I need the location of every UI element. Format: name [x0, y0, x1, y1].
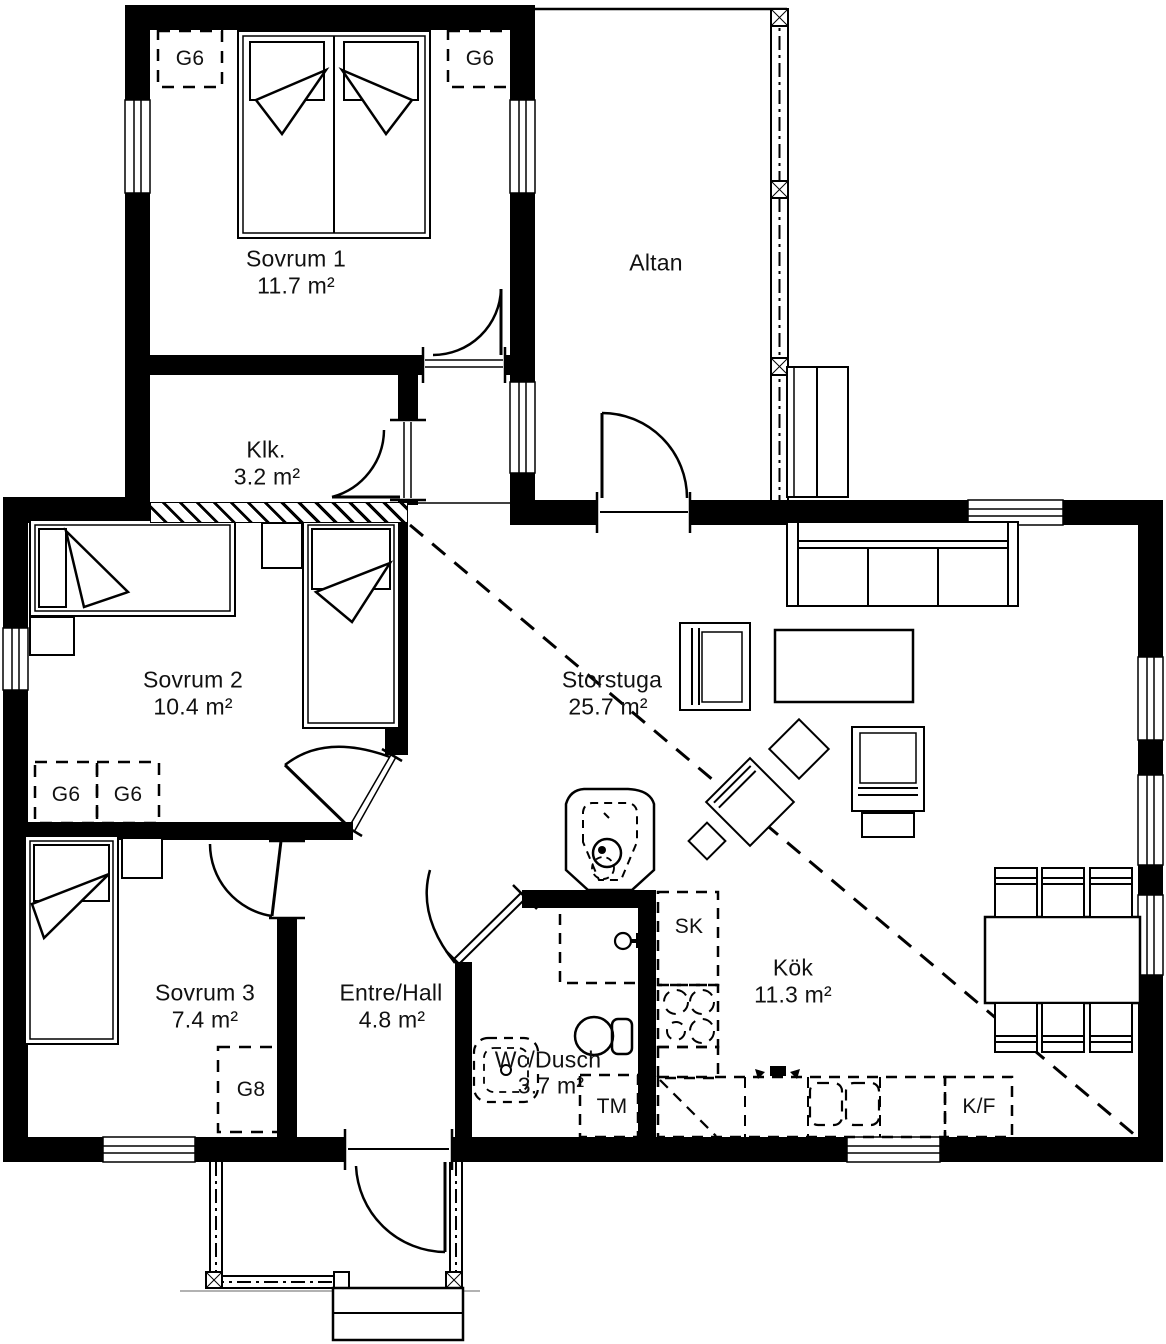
porch-railing-left [210, 1162, 222, 1288]
label-storstuga-name: Storstuga [562, 667, 662, 694]
label-g6-3: G6 [52, 783, 80, 807]
armchair-left [680, 623, 750, 710]
kitchen [658, 892, 1012, 1137]
window-sovrum1-left [125, 100, 150, 193]
porch-railing-right [446, 1162, 462, 1288]
label-g6-1: G6 [176, 47, 204, 71]
label-sovrum2-area: 10.4 m² [153, 694, 232, 721]
label-wc-area: 3.7 m² [518, 1073, 584, 1100]
sovrum2-nightstand-a [30, 617, 74, 655]
label-sovrum1-name: Sovrum 1 [246, 246, 346, 273]
label-g6-4: G6 [114, 783, 142, 807]
altan-storage-box [787, 367, 848, 497]
label-sk: SK [675, 915, 703, 939]
stove-hob [658, 985, 718, 1047]
label-kok-name: Kök [773, 955, 813, 982]
label-altan-name: Altan [629, 250, 682, 277]
footstool-rotated [689, 823, 726, 860]
floor-plan: Sovrum 1 11.7 m² G6 G6 Altan Klk. 3.2 m²… [0, 0, 1166, 1344]
counter-segment [658, 1047, 718, 1078]
sovrum1-bed [238, 31, 430, 238]
door-wc [427, 870, 537, 975]
window-kok-bottom [847, 1137, 940, 1162]
window-sovrum2-left [3, 628, 28, 690]
sink [810, 1083, 879, 1125]
armchair-rotated [706, 758, 794, 846]
label-g8: G8 [237, 1078, 265, 1102]
window-passage-altan [510, 382, 535, 473]
label-tm: TM [597, 1095, 628, 1119]
counter-corner-diagonal [660, 1080, 716, 1136]
label-sovrum3-name: Sovrum 3 [155, 980, 255, 1007]
fireplace-stove [566, 789, 654, 890]
label-sovrum1-area: 11.7 m² [257, 273, 335, 300]
sovrum2-nightstand-b [262, 523, 302, 568]
porch-steps [333, 1288, 463, 1340]
label-klk-name: Klk. [246, 437, 285, 464]
altan-railing [771, 9, 788, 500]
label-entre-area: 4.8 m² [359, 1007, 425, 1034]
counter-run [658, 1077, 945, 1137]
label-kok-area: 11.3 m² [754, 982, 832, 1009]
coffee-table [775, 630, 913, 702]
sovrum3-bed [25, 836, 118, 1044]
dining-table [985, 917, 1140, 1003]
window-right-3 [1138, 895, 1163, 975]
label-sovrum3-area: 7.4 m² [172, 1007, 238, 1034]
label-wc-name: Wc/Dusch [495, 1047, 601, 1074]
label-kf: K/F [962, 1095, 995, 1119]
label-storstuga-area: 25.7 m² [568, 694, 647, 721]
sovrum3-nightstand [122, 838, 162, 878]
sovrum2-bed-b [303, 520, 399, 728]
window-right-1 [1138, 657, 1163, 740]
label-entre-name: Entre/Hall [340, 980, 443, 1007]
side-table-rotated [769, 719, 828, 778]
label-sovrum2-name: Sovrum 2 [143, 667, 243, 694]
altan [533, 9, 848, 500]
armchair-right [852, 727, 924, 837]
porch-railing-bottom [206, 1272, 349, 1288]
hatched-wall [150, 502, 408, 523]
door-openings [275, 353, 690, 1164]
window-sovrum1-right [510, 100, 535, 193]
sovrum2-bed-a [30, 520, 235, 616]
window-sovrum3-bottom [103, 1137, 195, 1162]
sofa [787, 522, 1018, 606]
window-right-2 [1138, 775, 1163, 865]
label-g6-2: G6 [466, 47, 494, 71]
label-klk-area: 3.2 m² [234, 464, 300, 491]
